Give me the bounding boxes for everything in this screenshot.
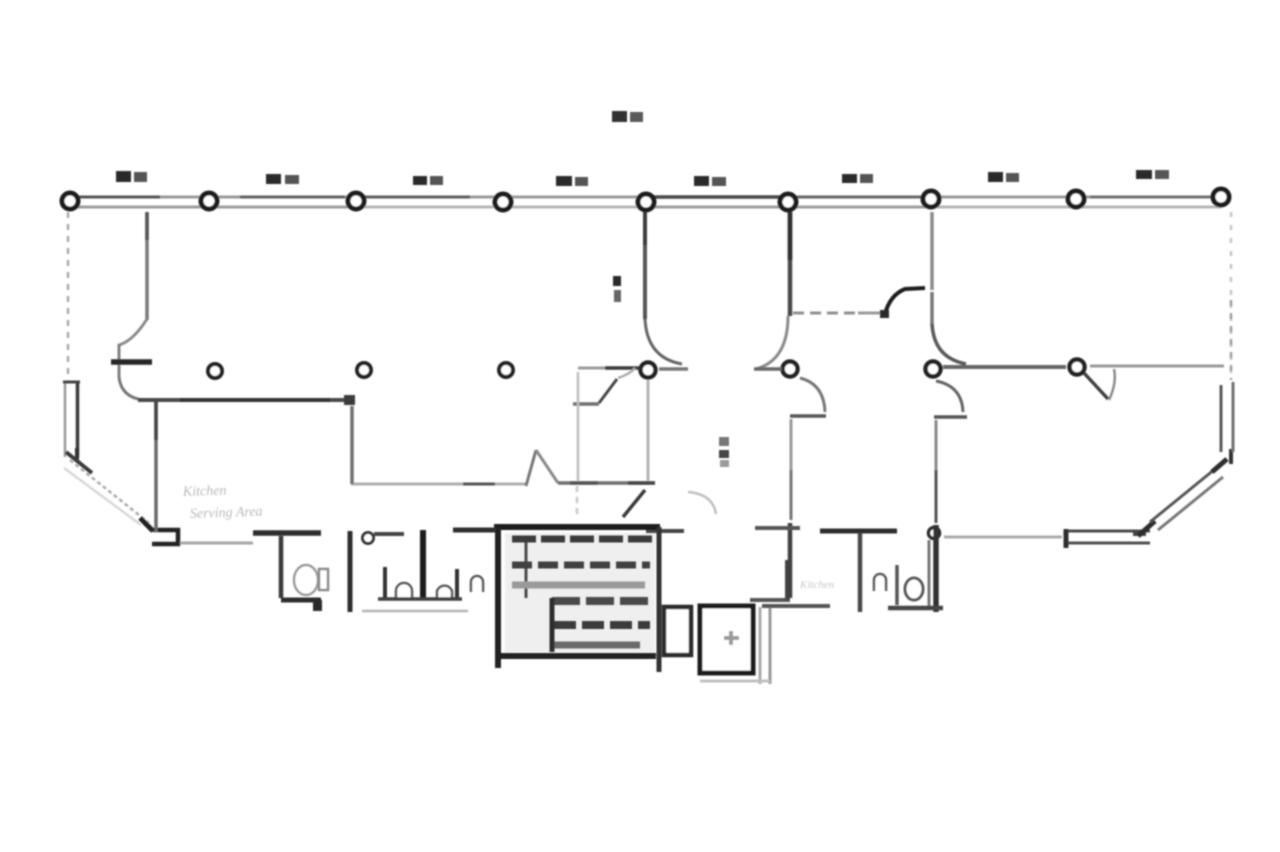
svg-text:Kitchen: Kitchen xyxy=(182,483,227,500)
svg-text:Kitchen: Kitchen xyxy=(799,579,835,591)
svg-text:Serving Area: Serving Area xyxy=(190,504,263,522)
